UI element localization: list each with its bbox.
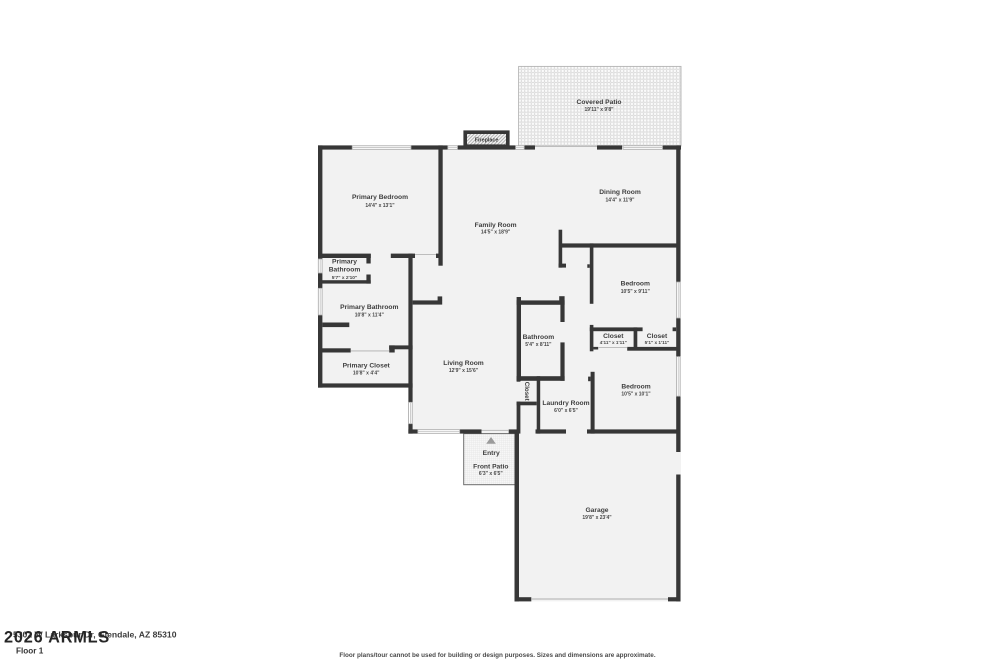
svg-text:Entry: Entry <box>483 450 500 457</box>
svg-text:5'1" x 1'11": 5'1" x 1'11" <box>645 340 670 345</box>
svg-text:6'3" x 6'5": 6'3" x 6'5" <box>479 471 503 477</box>
svg-text:14'5" x 18'9": 14'5" x 18'9" <box>481 230 511 236</box>
svg-text:19'8" x 23'4": 19'8" x 23'4" <box>582 515 612 521</box>
svg-text:14'4" x 13'1": 14'4" x 13'1" <box>365 203 395 209</box>
svg-text:14'4" x 11'9": 14'4" x 11'9" <box>605 197 635 203</box>
svg-text:Primary Bedroom: Primary Bedroom <box>352 194 408 201</box>
svg-text:6'0" x 6'5": 6'0" x 6'5" <box>554 408 578 414</box>
svg-text:2026 ARMLS: 2026 ARMLS <box>4 629 110 647</box>
svg-text:Front Patio: Front Patio <box>473 464 508 471</box>
svg-text:Garage: Garage <box>585 507 608 514</box>
svg-text:19'11" x 9'8": 19'11" x 9'8" <box>584 107 614 113</box>
svg-text:Living Room: Living Room <box>443 360 484 367</box>
svg-text:Laundry Room: Laundry Room <box>542 400 589 407</box>
svg-text:10'8" x 4'4": 10'8" x 4'4" <box>353 370 380 376</box>
svg-text:Fireplace: Fireplace <box>475 138 499 144</box>
svg-text:10'8" x 11'4": 10'8" x 11'4" <box>355 312 385 318</box>
svg-text:12'9" x 15'6": 12'9" x 15'6" <box>449 368 479 374</box>
svg-text:5'4" x 8'11": 5'4" x 8'11" <box>525 342 552 348</box>
svg-text:Floor 1: Floor 1 <box>16 646 44 655</box>
svg-text:Floor plans/tour cannot be use: Floor plans/tour cannot be used for buil… <box>339 652 655 659</box>
svg-text:Primary: Primary <box>332 259 357 266</box>
svg-text:Primary Bathroom: Primary Bathroom <box>340 304 398 311</box>
svg-text:Bedroom: Bedroom <box>621 281 650 288</box>
svg-text:Primary Closet: Primary Closet <box>343 362 391 369</box>
svg-text:Bathroom: Bathroom <box>523 334 555 341</box>
svg-text:Closet: Closet <box>523 382 530 401</box>
svg-text:Bedroom: Bedroom <box>621 383 650 390</box>
svg-text:Family Room: Family Room <box>475 222 517 229</box>
svg-text:10'5" x 9'11": 10'5" x 9'11" <box>621 289 651 295</box>
svg-text:Covered Patio: Covered Patio <box>577 99 622 106</box>
svg-text:10'5" x 10'1": 10'5" x 10'1" <box>621 391 651 397</box>
svg-text:5'7" x 2'10": 5'7" x 2'10" <box>332 275 358 281</box>
svg-text:Bathroom: Bathroom <box>329 266 361 273</box>
svg-text:4'11" x 1'11": 4'11" x 1'11" <box>600 340 627 345</box>
svg-text:Dining Room: Dining Room <box>599 189 641 196</box>
